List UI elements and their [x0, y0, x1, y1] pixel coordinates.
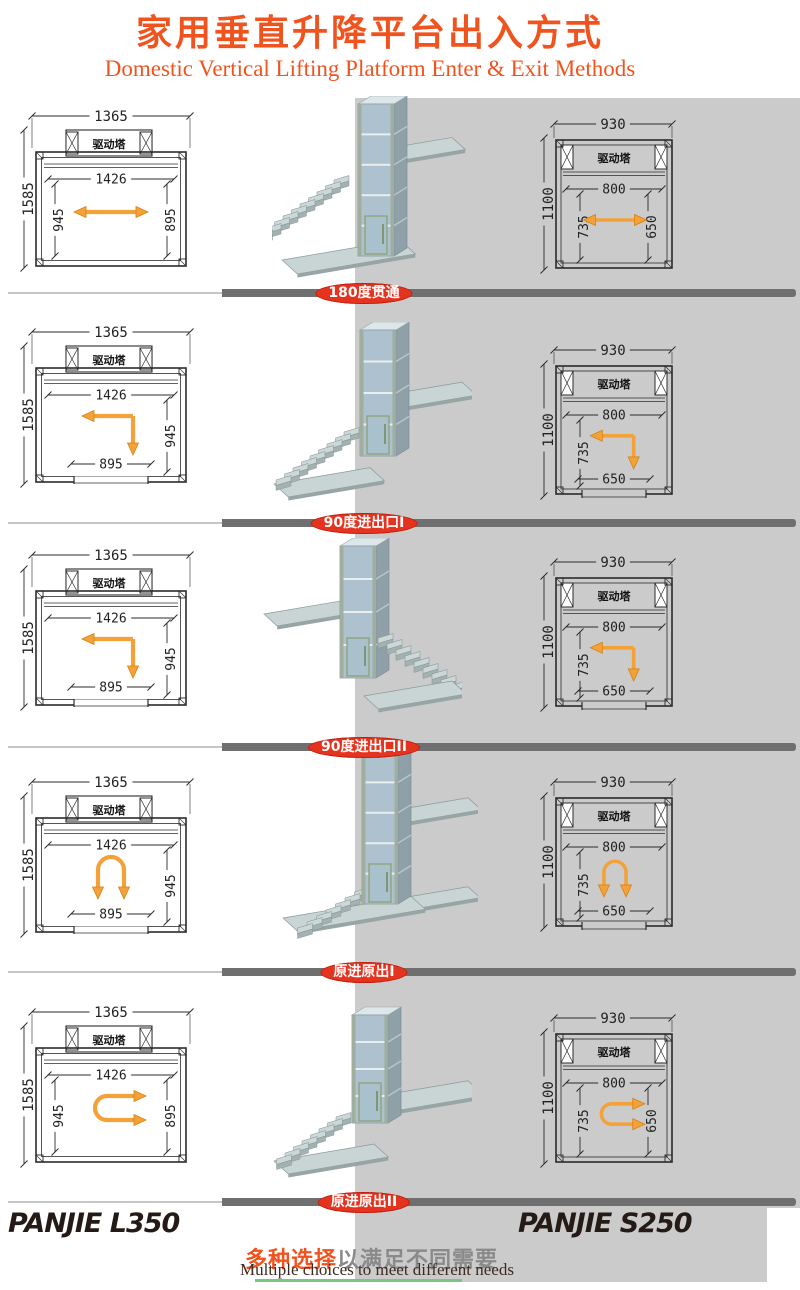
separator-thin-line [8, 292, 222, 294]
svg-text:930: 930 [600, 343, 625, 359]
svg-text:800: 800 [602, 1077, 625, 1092]
svg-text:1365: 1365 [94, 548, 128, 564]
plan-s250-row1: 930 1100 驱动塔 800 735 650 [536, 112, 688, 284]
svg-text:930: 930 [600, 775, 625, 791]
model-name-s250: PANJIE S250 [518, 1208, 692, 1239]
svg-text:895: 895 [99, 458, 122, 473]
plan-l350-row5: 1365 1585 驱动塔 1426 945 895 [16, 1002, 198, 1182]
svg-text:驱动塔: 驱动塔 [598, 1045, 632, 1059]
separator-thin-line [8, 746, 222, 748]
svg-text:1100: 1100 [541, 1081, 557, 1115]
svg-text:1100: 1100 [541, 625, 557, 659]
separator-bar [222, 289, 796, 297]
svg-text:800: 800 [602, 841, 625, 856]
svg-text:800: 800 [602, 409, 625, 424]
svg-text:945: 945 [164, 424, 179, 447]
method-label-4: 原进原出I [320, 962, 407, 983]
method-label-5: 原进原出II [318, 1192, 410, 1213]
svg-text:800: 800 [602, 621, 625, 636]
slogan-english: Multiple choices to meet different needs [240, 1260, 514, 1280]
svg-text:650: 650 [602, 685, 625, 700]
render-3d-row1 [272, 96, 472, 300]
svg-text:650: 650 [645, 215, 660, 238]
svg-text:驱动塔: 驱动塔 [598, 151, 632, 165]
method-label-1: 180度贯通 [315, 283, 412, 304]
svg-text:驱动塔: 驱动塔 [93, 576, 127, 590]
svg-text:1100: 1100 [541, 413, 557, 447]
svg-text:1426: 1426 [95, 839, 126, 854]
svg-text:1100: 1100 [541, 845, 557, 879]
svg-text:1585: 1585 [21, 848, 37, 882]
separator-thin-line [8, 522, 222, 524]
svg-text:735: 735 [577, 873, 592, 896]
render-3d-row5 [272, 995, 472, 1199]
svg-text:1426: 1426 [95, 612, 126, 627]
plan-s250-row3: 930 1100 驱动塔 800 735 650 [536, 550, 688, 722]
page-subtitle: Domestic Vertical Lifting Platform Enter… [0, 56, 740, 82]
svg-text:930: 930 [600, 555, 625, 571]
separator-thin-line [8, 971, 222, 973]
plan-l350-row4: 1365 1585 驱动塔 1426 945 895 [16, 772, 198, 952]
plan-l350-row2: 1365 1585 驱动塔 1426 945 895 [16, 322, 198, 502]
svg-text:1426: 1426 [95, 389, 126, 404]
plan-l350-row1: 1365 1585 驱动塔 1426 945 895 [16, 106, 198, 286]
svg-text:1585: 1585 [21, 621, 37, 655]
svg-text:驱动塔: 驱动塔 [598, 377, 632, 391]
separator-bar [222, 1198, 796, 1206]
svg-text:735: 735 [577, 1109, 592, 1132]
svg-text:1585: 1585 [21, 182, 37, 216]
svg-text:895: 895 [99, 908, 122, 923]
poster-page: 家用垂直升降平台出入方式 Domestic Vertical Lifting P… [0, 0, 800, 1290]
separator-thin-line [8, 1201, 222, 1203]
plan-l350-row3: 1365 1585 驱动塔 1426 945 895 [16, 545, 198, 725]
svg-text:1585: 1585 [21, 1078, 37, 1112]
svg-text:驱动塔: 驱动塔 [93, 803, 127, 817]
svg-text:735: 735 [577, 441, 592, 464]
svg-text:945: 945 [164, 874, 179, 897]
model-name-l350: PANJIE L350 [8, 1208, 179, 1239]
green-underline [255, 1279, 462, 1282]
svg-text:930: 930 [600, 1011, 625, 1027]
svg-text:1585: 1585 [21, 398, 37, 432]
svg-text:930: 930 [600, 117, 625, 133]
svg-text:1365: 1365 [94, 775, 128, 791]
svg-text:1365: 1365 [94, 325, 128, 341]
plan-s250-row4: 930 1100 驱动塔 800 735 650 [536, 770, 688, 942]
svg-text:945: 945 [52, 208, 67, 231]
svg-text:735: 735 [577, 653, 592, 676]
svg-text:650: 650 [645, 1109, 660, 1132]
svg-text:650: 650 [602, 473, 625, 488]
plan-s250-row5: 930 1100 驱动塔 800 735 650 [536, 1006, 688, 1178]
page-title: 家用垂直升降平台出入方式 [0, 14, 740, 54]
svg-text:驱动塔: 驱动塔 [93, 137, 127, 151]
svg-text:800: 800 [602, 183, 625, 198]
svg-text:895: 895 [164, 208, 179, 231]
separator-bar [222, 519, 796, 527]
svg-text:1100: 1100 [541, 187, 557, 221]
svg-text:1365: 1365 [94, 109, 128, 125]
svg-text:1426: 1426 [95, 1069, 126, 1084]
svg-text:945: 945 [164, 647, 179, 670]
svg-text:1365: 1365 [94, 1005, 128, 1021]
render-3d-row3 [262, 538, 462, 742]
svg-text:895: 895 [99, 681, 122, 696]
svg-text:650: 650 [602, 905, 625, 920]
render-3d-row4 [278, 748, 478, 952]
svg-text:驱动塔: 驱动塔 [598, 589, 632, 603]
svg-text:驱动塔: 驱动塔 [598, 809, 632, 823]
svg-text:1426: 1426 [95, 173, 126, 188]
header: 家用垂直升降平台出入方式 Domestic Vertical Lifting P… [0, 14, 740, 82]
plan-s250-row2: 930 1100 驱动塔 800 735 650 [536, 338, 688, 510]
method-label-3: 90度进出口II [308, 737, 420, 758]
render-3d-row2 [272, 322, 472, 526]
svg-text:895: 895 [164, 1104, 179, 1127]
separator-bar [222, 968, 796, 976]
method-label-2: 90度进出口I [311, 513, 418, 534]
svg-text:驱动塔: 驱动塔 [93, 353, 127, 367]
svg-text:驱动塔: 驱动塔 [93, 1033, 127, 1047]
svg-text:945: 945 [52, 1104, 67, 1127]
